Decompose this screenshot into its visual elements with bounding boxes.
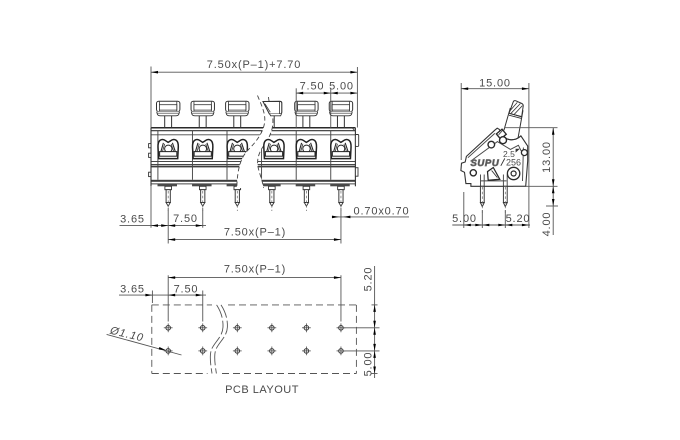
svg-text:3.65: 3.65 (120, 283, 145, 295)
svg-text:5.00: 5.00 (329, 81, 354, 93)
svg-text:PCB LAYOUT: PCB LAYOUT (225, 384, 299, 396)
svg-text:5.20: 5.20 (363, 267, 375, 292)
svg-text:7.50: 7.50 (300, 81, 325, 93)
svg-text:7.50x(P–1)+7.70: 7.50x(P–1)+7.70 (207, 59, 301, 71)
svg-text:0.70x0.70: 0.70x0.70 (354, 206, 410, 218)
svg-text:5.20: 5.20 (506, 213, 531, 225)
svg-text:4.00: 4.00 (541, 212, 553, 237)
svg-text:7.50: 7.50 (174, 283, 199, 295)
svg-text:SUPU: SUPU (471, 158, 500, 169)
svg-text:15.00: 15.00 (479, 78, 511, 90)
svg-text:5.00: 5.00 (452, 213, 477, 225)
svg-text:7.50x(P–1): 7.50x(P–1) (224, 227, 286, 239)
svg-text:256: 256 (506, 158, 521, 168)
svg-text:7.50x(P–1): 7.50x(P–1) (224, 264, 286, 276)
svg-text:3.65: 3.65 (120, 214, 145, 226)
svg-text:13.00: 13.00 (541, 141, 553, 173)
svg-text:5.00: 5.00 (363, 352, 375, 377)
svg-text:7.50: 7.50 (173, 213, 198, 225)
